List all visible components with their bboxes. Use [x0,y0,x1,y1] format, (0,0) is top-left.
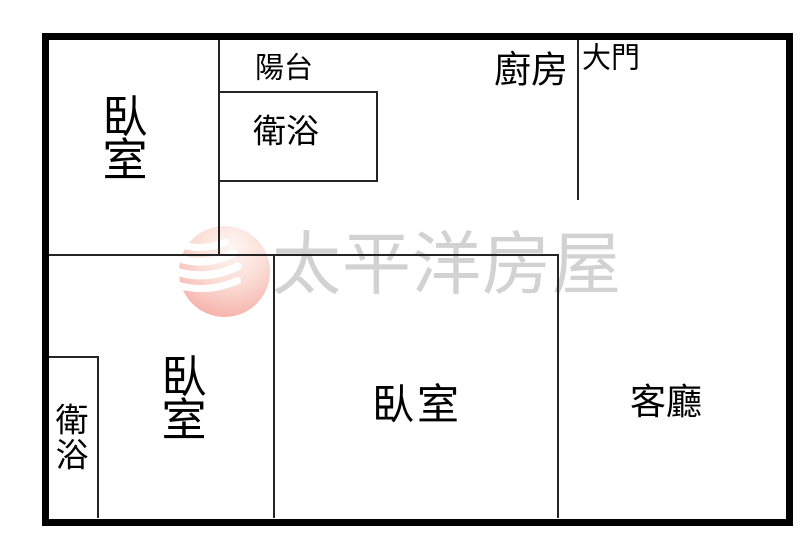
wall-middle-horizontal [49,254,559,256]
room-label-bedroom-bottom-middle: 臥室 [372,384,462,426]
wall-bathroom-bottom-top [49,356,99,358]
room-label-bedroom-top-left: 臥室 [103,96,148,182]
wall-bathroom-bottom-right [97,356,99,518]
outer-wall [42,33,793,526]
wall-kitchen-entry-divider [577,40,579,200]
wall-bedroom2-bedroom3-divider [273,254,275,518]
room-label-bathroom-top: 衛浴 [253,115,319,148]
wall-bedroom3-living-divider [557,254,559,518]
room-label-living-room: 客廳 [630,384,702,420]
room-label-bedroom-bottom-left: 臥室 [162,356,207,442]
room-label-main-door: 大門 [582,45,640,74]
room-label-balcony: 陽台 [255,55,313,84]
floor-plan-canvas: 太平洋房屋 臥室 陽台 衛浴 廚房 大門 臥室 衛浴 臥室 [0,0,800,534]
room-label-kitchen: 廚房 [494,52,568,89]
room-label-bathroom-bottom: 衛浴 [56,403,89,472]
